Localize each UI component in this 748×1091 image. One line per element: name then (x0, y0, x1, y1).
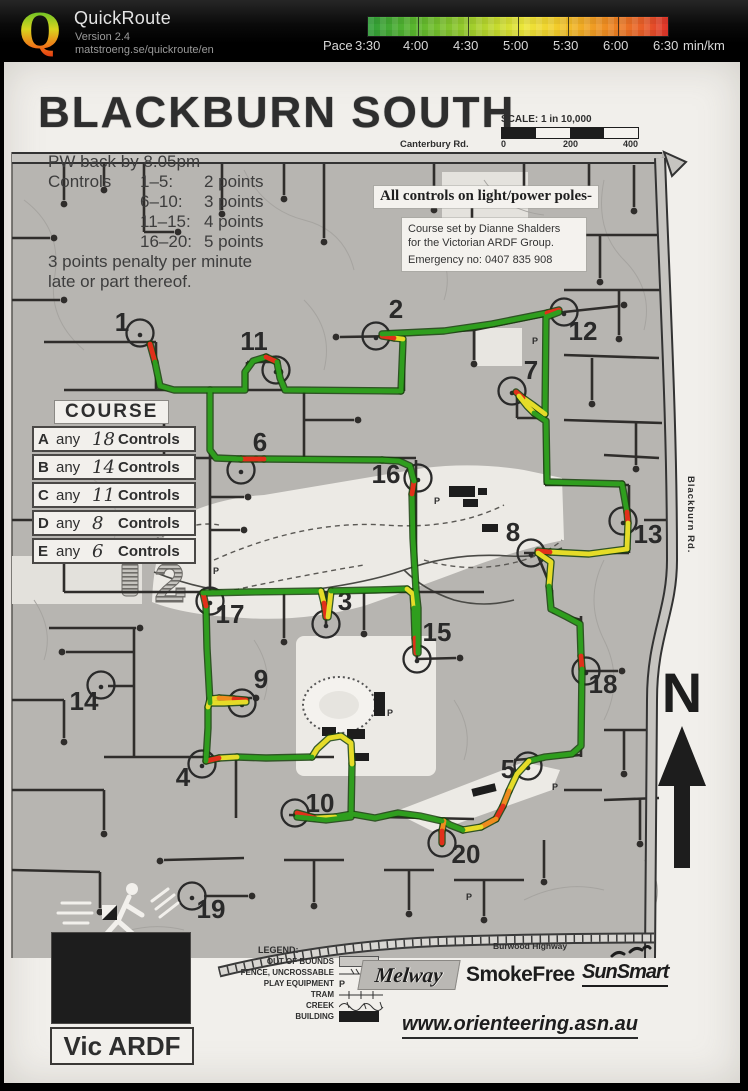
scale-block: SCALE: 1 in 10,000 0200400 (501, 114, 651, 150)
pace-tick-label: 6:30 (653, 38, 678, 53)
route-segment-g (237, 757, 312, 758)
svg-text:Q: Q (19, 6, 61, 58)
app-url: matstroeng.se/quickroute/en (75, 44, 214, 56)
setter-line: for the Victorian ARDF Group. (408, 236, 580, 250)
controls-word: Controls (118, 543, 180, 560)
control-number: 18 (589, 669, 618, 699)
pace-tick (568, 17, 569, 36)
points-range: 1–5: (140, 172, 204, 192)
route-segment-g (414, 608, 415, 638)
legend-creek-symbol (339, 1000, 399, 1012)
svg-text:P: P (532, 336, 538, 346)
control-number: 6 (253, 427, 267, 457)
svg-text:P: P (213, 566, 219, 576)
points-range: 6–10: (140, 192, 204, 212)
app-header: Q QuickRoute Version 2.4 matstroeng.se/q… (0, 0, 748, 62)
smokefree-logo: SmokeFree (466, 963, 575, 987)
pace-gradient-bar (367, 16, 669, 37)
course-row: Eany6Controls (32, 538, 196, 564)
pace-unit-label: min/km (683, 38, 725, 53)
pace-tick-label: 6:00 (603, 38, 628, 53)
course-table-rows: Aany18ControlsBany14ControlsCany11Contro… (32, 426, 196, 564)
pace-tick-label: 3:30 (355, 38, 380, 53)
control-number: 12 (569, 316, 598, 346)
control-number: 7 (524, 355, 538, 385)
route-segment-r (324, 603, 326, 617)
control-number: 4 (176, 762, 191, 792)
pace-prefix-label: Pace (323, 38, 353, 53)
scale-tick-labels: 0200400 (501, 139, 651, 150)
info-back-line: PW back by 8.05pm (48, 152, 298, 172)
route-segment-g (203, 591, 321, 593)
course-count: 6 (92, 541, 118, 562)
course-row: Cany11Controls (32, 482, 196, 508)
legend-item-label: BUILDING (226, 1012, 339, 1021)
control-number: 17 (216, 599, 245, 629)
any-word: any (56, 543, 92, 560)
legend-item-creek: CREEK (226, 1000, 406, 1011)
course-row: Dany8Controls (32, 510, 196, 536)
pace-tick-label: 5:00 (503, 38, 528, 53)
sunsmart-logo: SunSmart (582, 961, 668, 987)
road-label-blackburn: Blackburn Rd. (685, 476, 696, 553)
penalty-line-2: late or part thereof. (48, 272, 298, 292)
melway-logo-text: Melway (374, 963, 444, 988)
route-segment-y (463, 827, 481, 830)
course-row: Bany14Controls (32, 454, 196, 480)
app-title: QuickRoute (74, 8, 171, 29)
legend-item-label: OUT OF BOUNDS (226, 957, 339, 966)
scale-label: SCALE: 1 in 10,000 (501, 114, 651, 125)
pace-tick (468, 17, 469, 36)
scale-seg (536, 128, 570, 138)
points-value: 4 points (204, 212, 264, 232)
controls-word: Controls (118, 459, 180, 476)
scale-seg (604, 128, 638, 138)
control-points-table: Controls1–5:2 points6–10:3 points11–15:4… (48, 172, 298, 252)
scale-tick-label: 200 (563, 139, 578, 149)
svg-text:P: P (466, 892, 472, 902)
route-segment-g (401, 341, 403, 391)
website-link[interactable]: www.orienteering.asn.au (402, 1013, 638, 1039)
penalty-line-1: 3 points penalty per minute (48, 252, 298, 272)
pace-tick-label: 5:30 (553, 38, 578, 53)
svg-text:P: P (387, 708, 393, 718)
control-number: 13 (634, 519, 663, 549)
quickroute-window: Q QuickRoute Version 2.4 matstroeng.se/q… (0, 0, 748, 1091)
legend-building-symbol (339, 1011, 399, 1022)
course-letter: C (38, 487, 56, 504)
points-value: 2 points (204, 172, 264, 192)
melway-logo: Melway (357, 960, 460, 990)
points-row: 6–10:3 points (48, 192, 298, 212)
scale-seg (502, 128, 536, 138)
points-value: 3 points (204, 192, 264, 212)
points-row: 11–15:4 points (48, 212, 298, 232)
course-count: 8 (92, 513, 118, 534)
setter-emergency: Emergency no: 0407 835 908 (408, 253, 580, 267)
legend-item-label: PLAY EQUIPMENT (226, 979, 339, 988)
points-row: 16–20:5 points (48, 232, 298, 252)
pace-tick-label: 4:00 (403, 38, 428, 53)
control-number: 15 (423, 617, 452, 647)
control-number: 1 (115, 307, 129, 337)
legend-item-building: BUILDING (226, 1011, 406, 1022)
controls-word: Controls (118, 431, 180, 448)
route-segment-g (264, 459, 382, 460)
sun-rays-icon (608, 942, 652, 960)
control-number: 19 (197, 894, 226, 924)
points-row: Controls1–5:2 points (48, 172, 298, 192)
scale-tick-label: 400 (623, 139, 638, 149)
pace-tick (618, 17, 619, 36)
legend-item-label: FENCE, UNCROSSABLE (226, 968, 339, 977)
course-count: 14 (92, 457, 118, 478)
route-segment-g (206, 707, 208, 761)
controls-notice-box: All controls on light/power poles- (374, 186, 598, 208)
control-number: 9 (254, 664, 268, 694)
app-version: Version 2.4 (75, 31, 130, 43)
event-info-block: PW back by 8.05pm Controls1–5:2 points6–… (48, 152, 298, 292)
route-segment-y (210, 702, 246, 703)
pace-tick (518, 17, 519, 36)
pace-tick (418, 17, 419, 36)
points-value: 5 points (204, 232, 264, 252)
vic-ardf-label: Vic ARDF (50, 1027, 194, 1065)
any-word: any (56, 515, 92, 532)
legend-title: LEGEND: (258, 945, 406, 955)
points-range: 16–20: (140, 232, 204, 252)
course-table: COURSE Aany18ControlsBany14ControlsCany1… (32, 400, 196, 564)
pace-tick-label: 4:30 (453, 38, 478, 53)
controls-word: Controls (118, 515, 180, 532)
route-segment-g (331, 589, 407, 591)
scale-tick-label: 0 (501, 139, 506, 149)
route-segment-y (219, 757, 237, 758)
control-number: 20 (452, 839, 481, 869)
course-letter: B (38, 459, 56, 476)
control-number: 2 (389, 294, 403, 324)
controls-word: Controls (48, 172, 111, 191)
setter-line: Course set by Dianne Shalders (408, 222, 580, 236)
road-label-canterbury: Canterbury Rd. (400, 139, 469, 150)
scale-bar (501, 127, 639, 139)
route-segment-y (328, 591, 331, 617)
course-letter: A (38, 431, 56, 448)
course-row: Aany18Controls (32, 426, 196, 452)
svg-text:P: P (552, 782, 558, 792)
points-range: 11–15: (140, 212, 204, 232)
pool-oval (303, 677, 375, 733)
any-word: any (56, 487, 92, 504)
map-paper: 2 (4, 62, 740, 1083)
course-letter: D (38, 515, 56, 532)
quickroute-logo-icon: Q (14, 6, 66, 58)
route-segment-y (627, 523, 628, 549)
any-word: any (56, 431, 92, 448)
legend-tram-symbol (339, 990, 399, 1000)
course-count: 18 (92, 429, 118, 450)
course-count: 11 (92, 485, 118, 506)
any-word: any (56, 459, 92, 476)
control-number: 14 (70, 686, 99, 716)
course-letter: E (38, 543, 56, 560)
control-number: 11 (240, 326, 268, 356)
map-title: BLACKBURN SOUTH (38, 88, 515, 138)
vic-ardf-logo (52, 933, 190, 1023)
control-number: 8 (506, 517, 520, 547)
svg-text:N: N (662, 661, 702, 724)
course-table-title: COURSE (54, 400, 169, 424)
svg-text:P: P (434, 496, 440, 506)
legend-item-tram: TRAM (226, 989, 406, 1000)
legend-item-label: TRAM (226, 990, 339, 999)
controls-word: Controls (118, 487, 180, 504)
north-arrow: N (658, 661, 706, 868)
course-setter-box: Course set by Dianne Shalders for the Vi… (402, 218, 586, 271)
road-label-burwood: Burwood Highway (493, 941, 567, 951)
legend-item-label: CREEK (226, 1001, 339, 1010)
scale-seg (570, 128, 604, 138)
